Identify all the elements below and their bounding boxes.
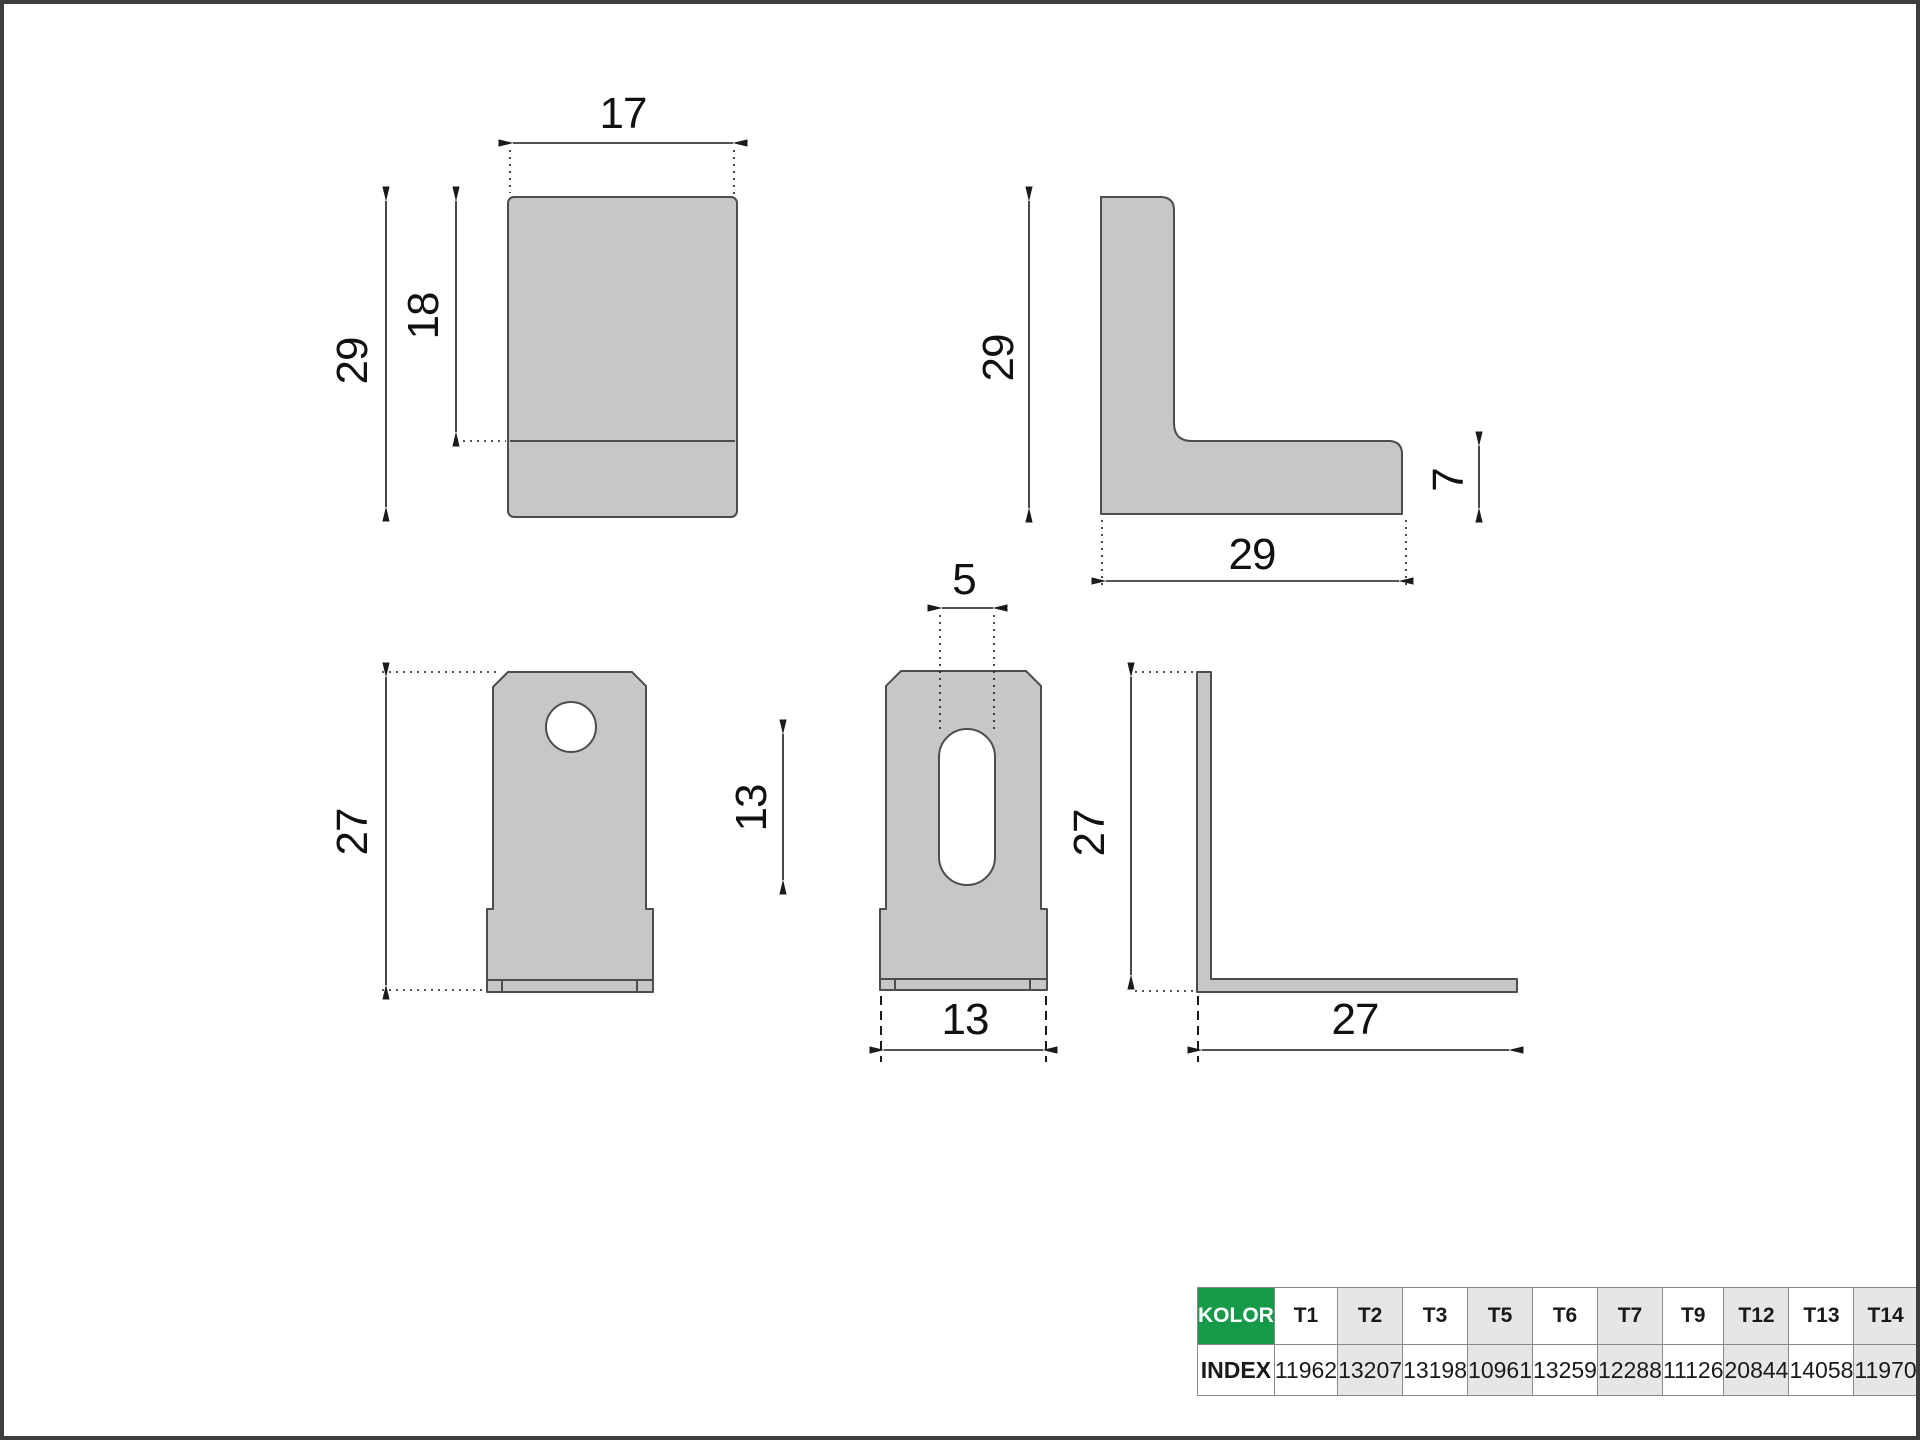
kolor-header: KOLOR [1198, 1288, 1275, 1345]
index-cell: 11962 [1274, 1345, 1337, 1396]
index-row: INDEX 11962 13207 13198 10961 13259 1228… [1198, 1345, 1918, 1396]
color-cell: T5 [1468, 1288, 1533, 1345]
dim-label-front-width: 17 [600, 92, 647, 136]
color-cell: T9 [1662, 1288, 1724, 1345]
index-cell: 12288 [1597, 1345, 1662, 1396]
color-cell: T1 [1274, 1288, 1337, 1345]
dim-label-front-fold: 18 [402, 293, 446, 340]
color-cell: T6 [1533, 1288, 1598, 1345]
color-cell: T2 [1338, 1288, 1403, 1345]
technical-drawing [4, 4, 1920, 1440]
dim-label-tab-width: 13 [942, 998, 989, 1042]
index-header: INDEX [1198, 1345, 1275, 1396]
color-cell: T14 [1854, 1288, 1917, 1345]
dim-label-profile-height: 27 [1068, 810, 1112, 857]
dim-label-tab-height: 27 [331, 809, 375, 856]
index-cell: 20844 [1724, 1345, 1789, 1396]
index-cell: 10961 [1468, 1345, 1533, 1396]
index-cell: 13207 [1338, 1345, 1403, 1396]
color-row: KOLOR T1 T2 T3 T5 T6 T7 T9 T12 T13 T14 [1198, 1288, 1918, 1345]
front-bottom-view [382, 672, 653, 992]
color-index-table: KOLOR T1 T2 T3 T5 T6 T7 T9 T12 T13 T14 I… [1197, 1287, 1918, 1396]
index-cell: 11970 [1854, 1345, 1917, 1396]
dim-label-side-thickness: 7 [1427, 468, 1471, 491]
color-cell: T7 [1597, 1288, 1662, 1345]
color-cell: T13 [1789, 1288, 1854, 1345]
dim-label-side-height: 29 [977, 335, 1021, 382]
dim-label-front-height: 29 [331, 338, 375, 385]
round-hole [546, 702, 596, 752]
dim-label-slot-length: 13 [730, 785, 774, 832]
side-bottom-view [1131, 672, 1517, 1062]
tab-bottom-view [783, 608, 1047, 1062]
slot-hole [939, 729, 995, 885]
color-cell: T3 [1403, 1288, 1468, 1345]
dim-label-side-width: 29 [1229, 533, 1276, 577]
dim-label-slot-width: 5 [952, 558, 975, 602]
dim-label-profile-width: 27 [1332, 998, 1379, 1042]
color-cell: T12 [1724, 1288, 1789, 1345]
index-cell: 11126 [1662, 1345, 1724, 1396]
index-cell: 13198 [1403, 1345, 1468, 1396]
index-cell: 13259 [1533, 1345, 1598, 1396]
drawing-sheet: 17 29 18 29 29 7 27 5 13 13 27 27 KOLOR … [0, 0, 1920, 1440]
index-cell: 14058 [1789, 1345, 1854, 1396]
